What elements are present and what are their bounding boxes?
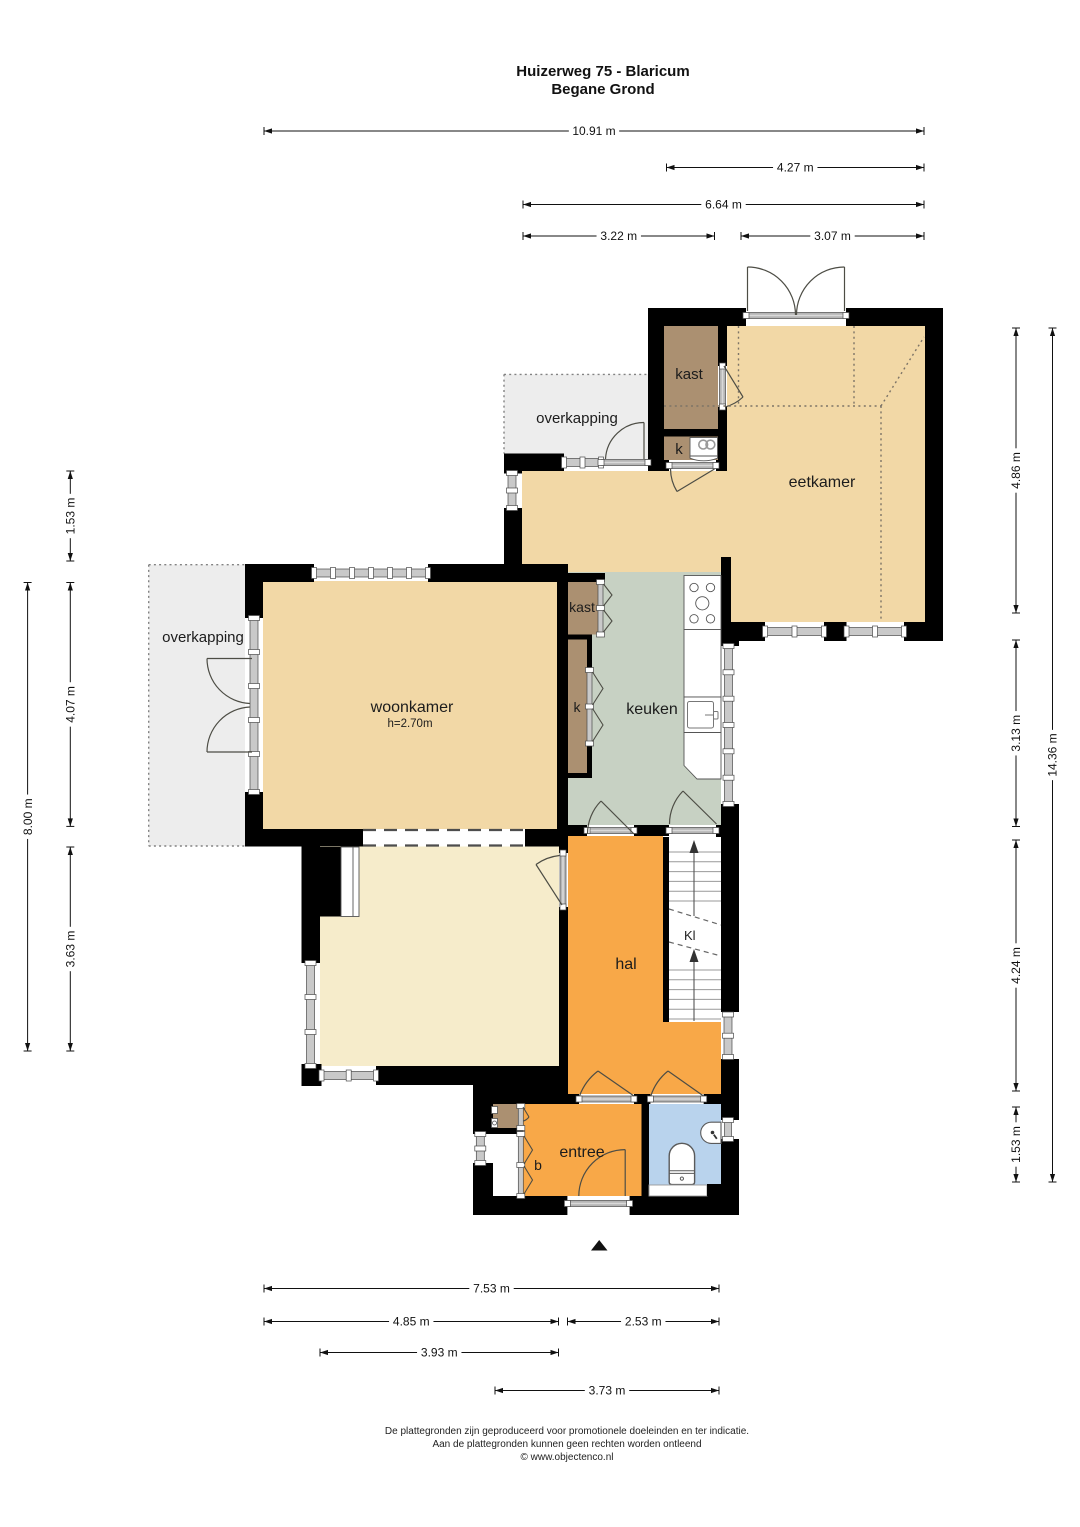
svg-text:1.53 m: 1.53 m [64, 498, 78, 535]
svg-text:4.85 m: 4.85 m [393, 1315, 430, 1329]
svg-text:14.36 m: 14.36 m [1046, 733, 1060, 776]
svg-text:Huizerweg 75 - Blaricum: Huizerweg 75 - Blaricum [516, 63, 689, 80]
svg-text:10.91 m: 10.91 m [572, 124, 615, 138]
svg-text:woonkamer: woonkamer [370, 699, 454, 716]
svg-text:kast: kast [569, 599, 595, 615]
svg-text:hal: hal [615, 956, 636, 973]
svg-text:6.64 m: 6.64 m [705, 198, 742, 212]
svg-text:8.00 m: 8.00 m [21, 798, 35, 835]
svg-text:Begane Grond: Begane Grond [551, 81, 654, 98]
svg-text:3.93 m: 3.93 m [421, 1346, 458, 1360]
svg-text:k: k [675, 441, 683, 458]
svg-text:© www.objectenco.nl: © www.objectenco.nl [521, 1452, 614, 1463]
svg-text:entree: entree [559, 1144, 604, 1161]
svg-text:overkapping: overkapping [536, 410, 618, 427]
svg-text:De plattegronden zijn geproduc: De plattegronden zijn geproduceerd voor … [385, 1426, 749, 1437]
svg-text:Kl: Kl [684, 928, 696, 943]
svg-text:keuken: keuken [626, 701, 678, 718]
svg-text:4.27 m: 4.27 m [777, 161, 814, 175]
svg-text:kast: kast [675, 366, 703, 383]
svg-text:k: k [574, 699, 582, 715]
svg-text:3.22 m: 3.22 m [600, 229, 637, 243]
svg-text:2.53 m: 2.53 m [625, 1315, 662, 1329]
svg-text:4.24 m: 4.24 m [1009, 947, 1023, 984]
svg-text:eetkamer: eetkamer [789, 474, 856, 491]
svg-text:3.73 m: 3.73 m [589, 1384, 626, 1398]
svg-text:7.53 m: 7.53 m [473, 1282, 510, 1296]
svg-text:b: b [534, 1157, 542, 1173]
svg-text:4.07 m: 4.07 m [64, 686, 78, 723]
svg-text:4.86 m: 4.86 m [1009, 452, 1023, 489]
svg-text:3.07 m: 3.07 m [814, 229, 851, 243]
svg-text:3.13 m: 3.13 m [1009, 715, 1023, 752]
svg-text:h=2.70m: h=2.70m [387, 718, 432, 730]
svg-text:Aan de plattegronden kunnen ge: Aan de plattegronden kunnen geen rechten… [432, 1439, 701, 1450]
svg-text:overkapping: overkapping [162, 629, 244, 646]
svg-text:3.63 m: 3.63 m [64, 931, 78, 968]
svg-text:1.53 m: 1.53 m [1009, 1126, 1023, 1163]
